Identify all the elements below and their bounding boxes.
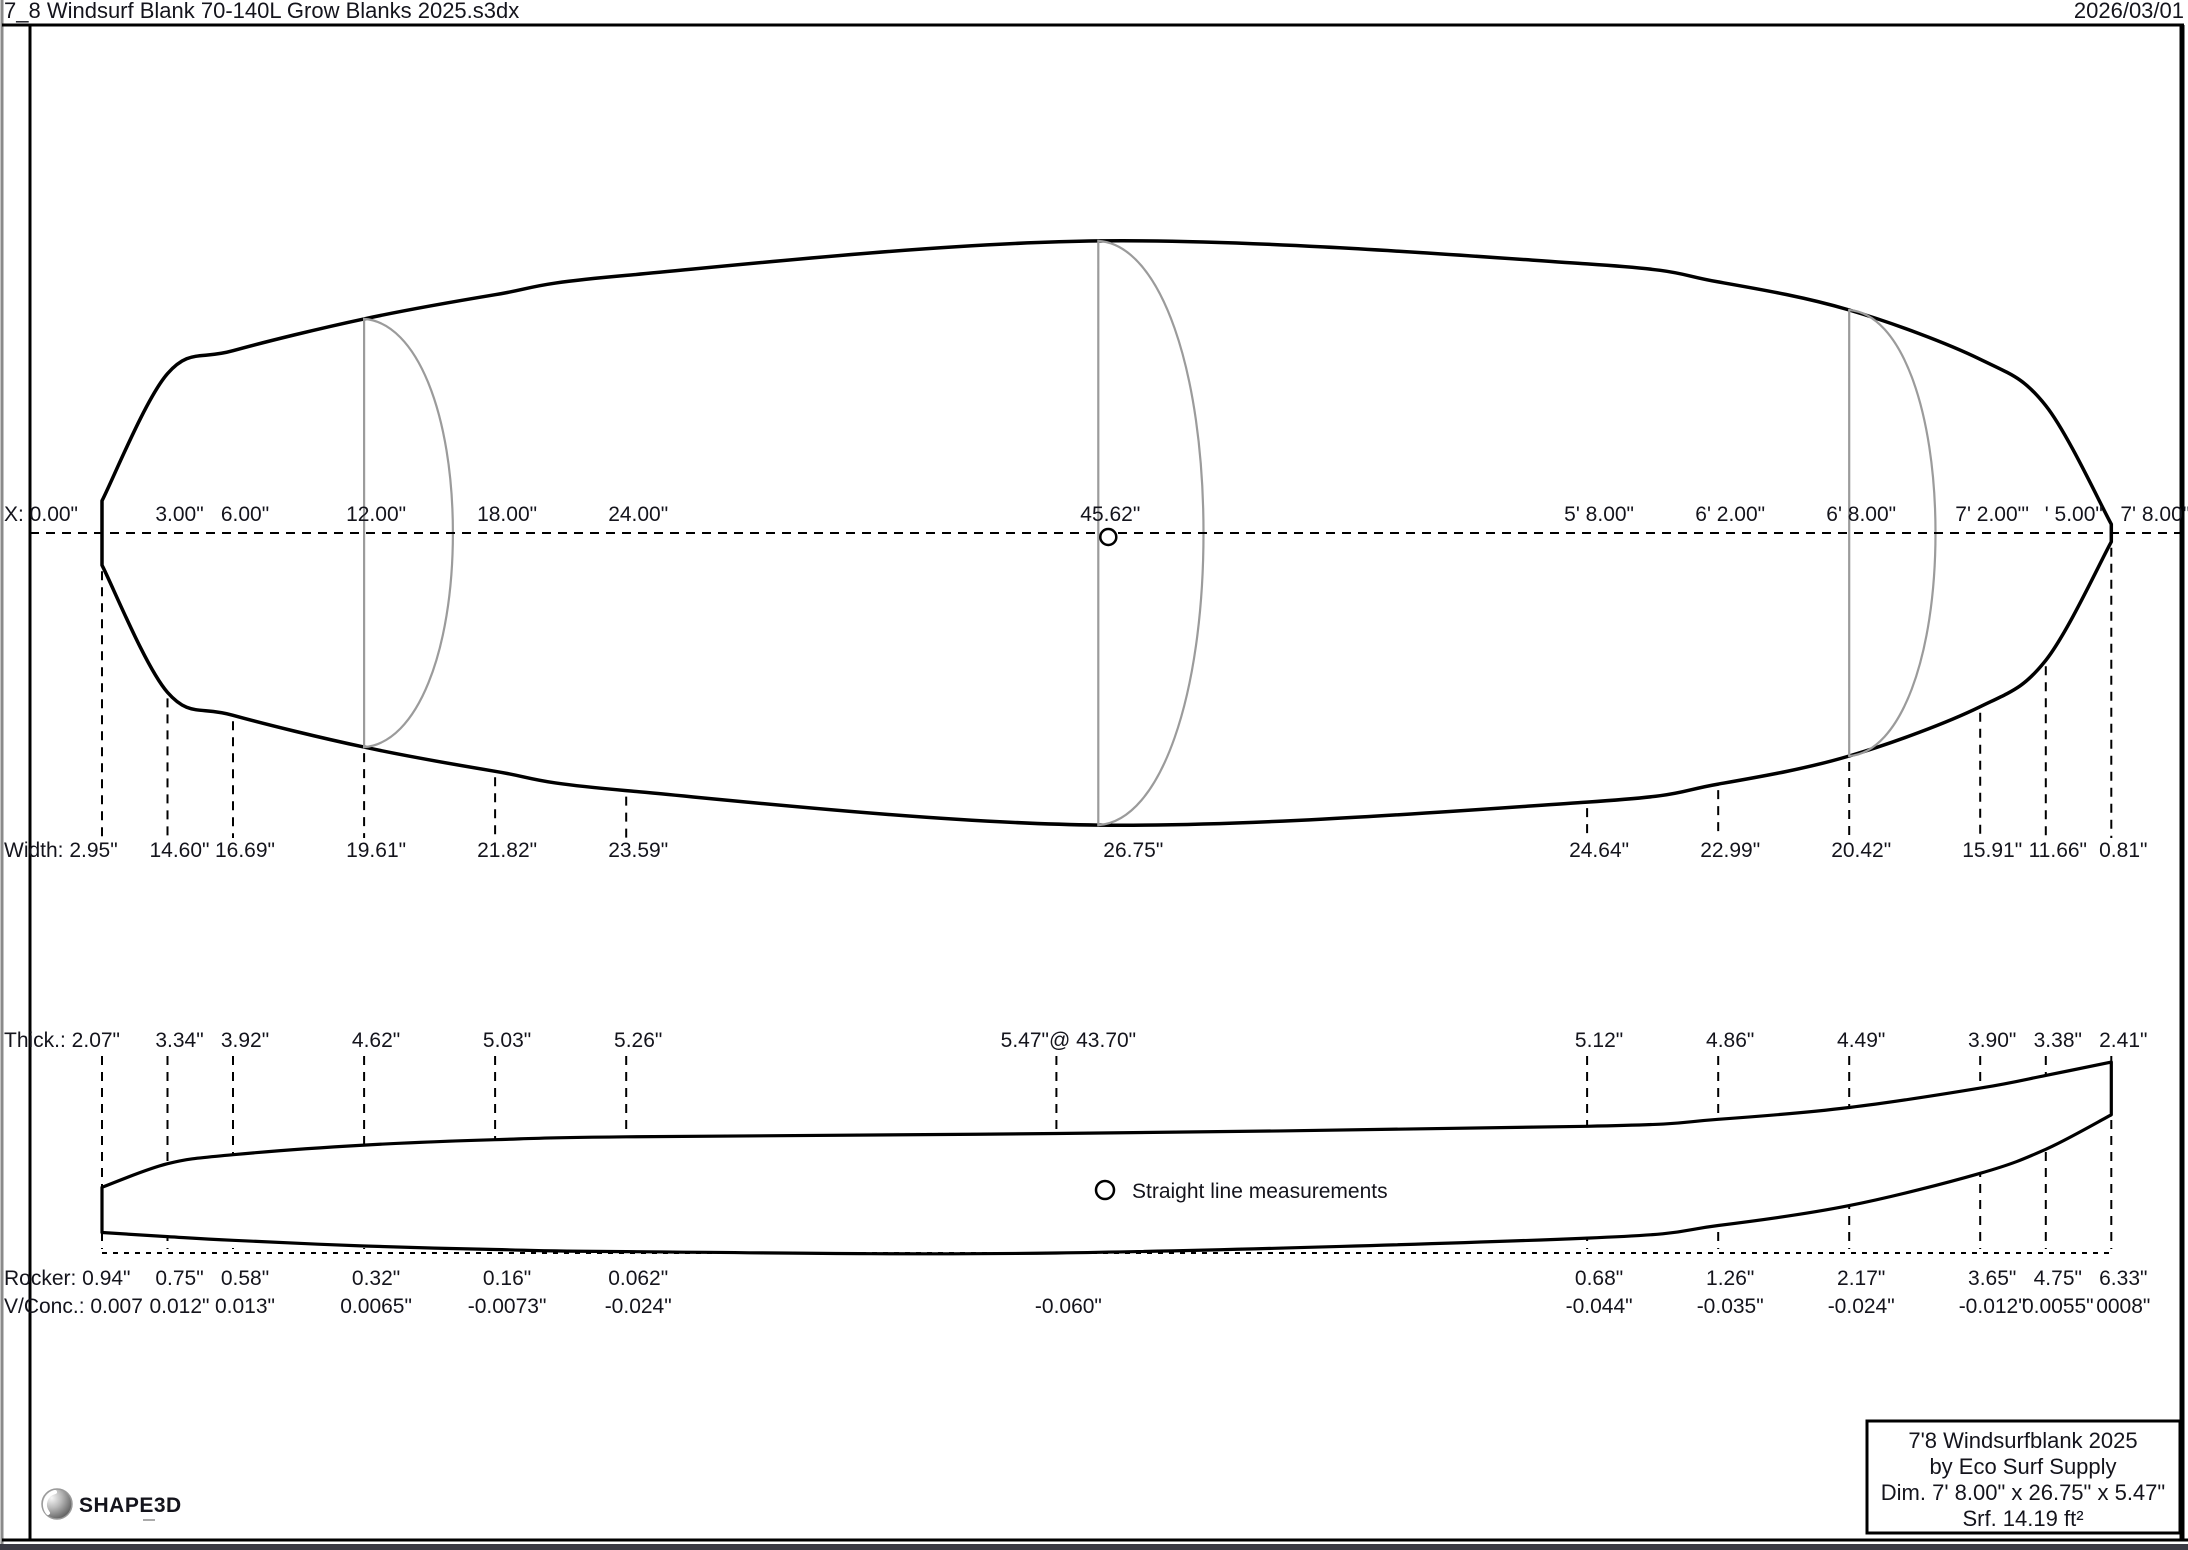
width-label: 11.66": [2029, 839, 2087, 862]
thickness-label: 5.47"@ 43.70": [1001, 1029, 1137, 1052]
info-box-surface: Srf. 14.19 ft²: [1962, 1506, 2083, 1531]
width-label: 15.91": [1962, 839, 2022, 862]
width-label: 22.99": [1700, 839, 1760, 862]
board-profile-path: [102, 1062, 2111, 1254]
info-box: 7'8 Windsurfblank 2025 by Eco Surf Suppl…: [1867, 1421, 2180, 1533]
vconcave-label: 0.0055": [2022, 1295, 2094, 1318]
window-title: 7_8 Windsurf Blank 70-140L Grow Blanks 2…: [4, 0, 519, 23]
thickness-label: 3.38": [2034, 1029, 2082, 1052]
thickness-label: 3.90": [1968, 1029, 2016, 1052]
width-label: 26.75": [1103, 839, 1163, 862]
width-label: 20.42": [1831, 839, 1891, 862]
thickness-label: 5.26": [614, 1029, 662, 1052]
print-preview-canvas: 7_8 Windsurf Blank 70-140L Grow Blanks 2…: [0, 0, 2188, 1550]
thickness-label: 4.49": [1837, 1029, 1885, 1052]
info-box-title: 7'8 Windsurfblank 2025: [1908, 1428, 2137, 1453]
rocker-label: 2.17": [1837, 1267, 1885, 1290]
x-station-label: 6' 8.00": [1826, 503, 1896, 526]
vconcave-label: -0.0073": [468, 1295, 547, 1318]
vconcave-label: 0008": [2096, 1295, 2150, 1318]
thickness-label: 3.34": [155, 1029, 203, 1052]
width-label: 23.59": [608, 839, 668, 862]
legend-label: Straight line measurements: [1132, 1180, 1388, 1203]
rocker-label: 0.58": [221, 1267, 269, 1290]
rocker-label: 6.33": [2099, 1267, 2147, 1290]
rocker-label: 4.75": [2034, 1267, 2082, 1290]
x-station-label: 18.00": [477, 503, 537, 526]
vconcave-label: 0.012": [149, 1295, 209, 1318]
x-station-label: 3.00": [155, 503, 203, 526]
thickness-label: 4.62": [352, 1029, 400, 1052]
thickness-label: 4.86": [1706, 1029, 1754, 1052]
x-station-label: 6' 2.00": [1695, 503, 1765, 526]
x-station-label: 24.00": [608, 503, 668, 526]
rocker-label: 0.68": [1575, 1267, 1623, 1290]
shape3d-logo-text: SHAPE3D: [79, 1494, 182, 1517]
width-label: 0.81": [2099, 839, 2147, 862]
rocker-label: 0.16": [483, 1267, 531, 1290]
thickness-label: 5.03": [483, 1029, 531, 1052]
rocker-label: 1.26": [1706, 1267, 1754, 1290]
vconcave-label: -0.044": [1566, 1295, 1633, 1318]
width-label: Width: 2.95": [4, 839, 118, 862]
vconcave-label: -0.024": [605, 1295, 672, 1318]
width-label: 14.60": [149, 839, 209, 862]
x-station-label: 7' 2.00"': [1955, 503, 2029, 526]
widepoint-marker: [1100, 529, 1116, 545]
thickness-label: 2.41": [2099, 1029, 2147, 1052]
rocker-label: 3.65": [1968, 1267, 2016, 1290]
vconcave-label: -0.035": [1697, 1295, 1764, 1318]
vconcave-label: 0.013": [215, 1295, 275, 1318]
vconcave-label: 0.0065": [340, 1295, 412, 1318]
side-view: Thick.: 2.07"Rocker: 0.94"V/Conc.: 0.007…: [4, 1029, 2150, 1318]
x-station-label: 6.00": [221, 503, 269, 526]
shape3d-logo: SHAPE3D: [42, 1489, 182, 1520]
x-station-label: ' 5.00": [2045, 503, 2103, 526]
thickness-label: 3.92": [221, 1029, 269, 1052]
info-box-dimensions: Dim. 7' 8.00" x 26.75" x 5.47": [1881, 1480, 2165, 1505]
x-station-label: 45.62": [1080, 503, 1140, 526]
vconcave-label: V/Conc.: 0.007: [4, 1295, 143, 1318]
vconcave-label: -0.060": [1035, 1295, 1102, 1318]
top-view: X: 0.00"Width: 2.95"3.00"14.60"6.00"16.6…: [4, 241, 2188, 862]
rocker-label: 0.75": [155, 1267, 203, 1290]
width-label: 21.82": [477, 839, 537, 862]
window-bottom-band: [0, 1544, 2188, 1550]
x-station-label: 12.00": [346, 503, 406, 526]
thickness-label: Thick.: 2.07": [4, 1029, 120, 1052]
info-box-author: by Eco Surf Supply: [1929, 1454, 2116, 1479]
rocker-label: 0.062": [608, 1267, 668, 1290]
x-station-label: X: 0.00": [4, 503, 78, 526]
vconcave-label: -0.024": [1828, 1295, 1895, 1318]
vconcave-label: -0.012": [1959, 1295, 2026, 1318]
width-label: 19.61": [346, 839, 406, 862]
x-station-label: 5' 8.00": [1564, 503, 1634, 526]
legend: Straight line measurements: [1096, 1180, 1388, 1203]
width-label: 16.69": [215, 839, 275, 862]
rocker-label: Rocker: 0.94": [4, 1267, 131, 1290]
thickness-label: 5.12": [1575, 1029, 1623, 1052]
rocker-label: 0.32": [352, 1267, 400, 1290]
window-date: 2026/03/01: [2074, 0, 2184, 23]
x-station-label: 7' 8.00": [2120, 503, 2188, 526]
width-label: 24.64": [1569, 839, 1629, 862]
